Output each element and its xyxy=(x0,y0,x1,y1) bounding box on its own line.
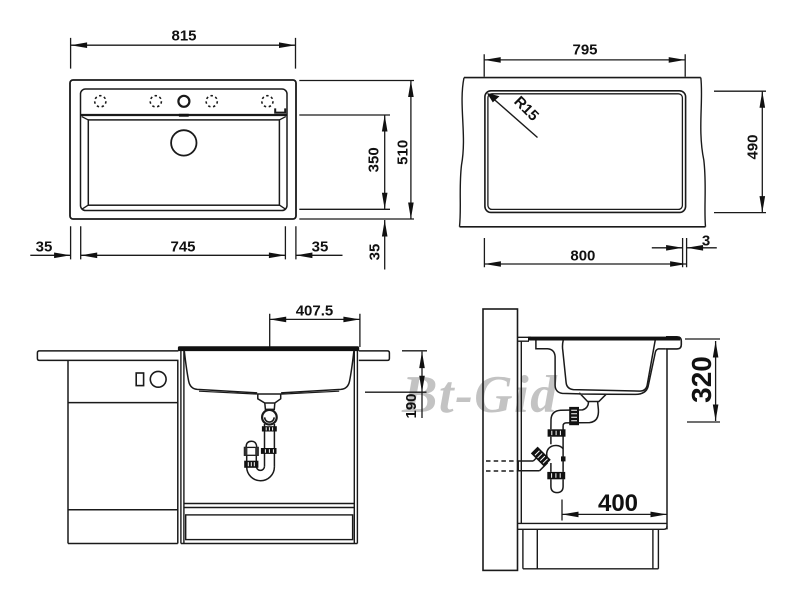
svg-text:190: 190 xyxy=(403,393,420,418)
svg-text:350: 350 xyxy=(365,147,382,172)
svg-text:510: 510 xyxy=(394,140,411,165)
svg-text:35: 35 xyxy=(312,239,329,256)
svg-text:745: 745 xyxy=(170,239,195,256)
svg-text:320: 320 xyxy=(686,356,717,403)
svg-text:R15: R15 xyxy=(510,93,541,124)
svg-text:Bt-Gid: Bt-Gid xyxy=(401,366,558,424)
svg-text:795: 795 xyxy=(572,42,597,59)
svg-text:35: 35 xyxy=(367,244,384,261)
svg-text:400: 400 xyxy=(598,490,638,517)
svg-text:407.5: 407.5 xyxy=(296,302,334,319)
svg-text:35: 35 xyxy=(36,239,53,256)
svg-text:800: 800 xyxy=(570,248,595,265)
svg-text:490: 490 xyxy=(745,134,762,159)
svg-text:3: 3 xyxy=(702,232,710,249)
svg-text:815: 815 xyxy=(171,28,196,45)
